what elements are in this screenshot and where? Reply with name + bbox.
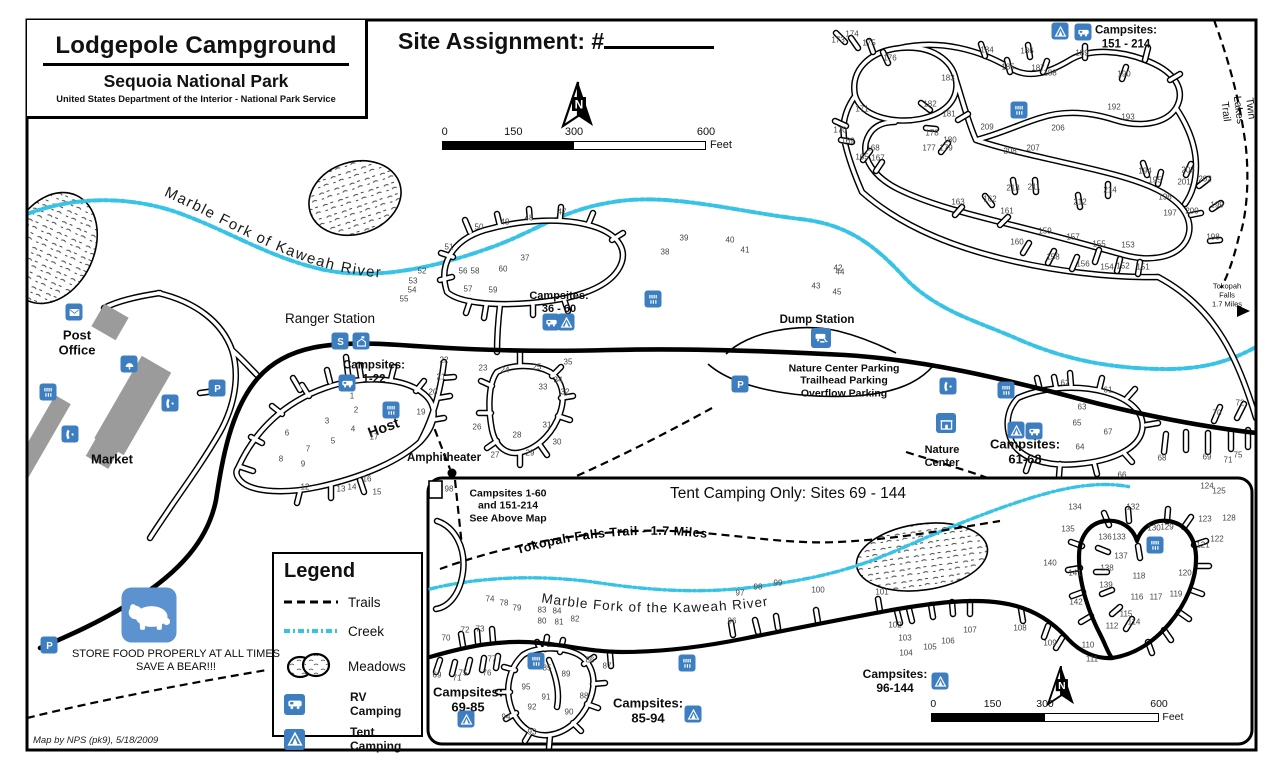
legend-item-label: Trails: [348, 595, 381, 610]
site-assignment-label: Site Assignment: #: [398, 28, 604, 54]
title-block: Lodgepole Campground Sequoia National Pa…: [27, 20, 368, 119]
creek-marble-fork: [27, 199, 1256, 369]
legend: Legend TrailsCreekMeadowsRV CampingTent …: [272, 552, 423, 737]
legend-sample-trail: [284, 598, 340, 606]
trail: [572, 408, 712, 478]
meadow-area: [299, 149, 411, 247]
map-credit: Map by NPS (pk9), 5/18/2009: [33, 735, 158, 746]
scale-tick: 600: [697, 126, 715, 138]
legend-sample-creek: [284, 627, 340, 635]
scale-bar-graphic: [442, 141, 706, 150]
legend-item-label: Creek: [348, 624, 384, 639]
legend-item: Tent Camping: [284, 725, 411, 753]
map-subtitle: Sequoia National Park: [27, 71, 365, 92]
scale-unit: Feet: [1162, 711, 1183, 723]
legend-sample-rv: [284, 694, 340, 715]
scale-tick: 600: [1150, 698, 1168, 710]
agency-line: United States Department of the Interior…: [27, 94, 365, 104]
legend-item-label: RV Camping: [350, 690, 411, 718]
scale-bar-graphic: [931, 713, 1159, 722]
lodgepole-campground-map: Marble Fork of Kaweah River Tokopah Fall…: [0, 0, 1280, 777]
scale-bar-inset: 0 150 300 600 Feet: [931, 698, 1159, 728]
legend-item-label: Tent Camping: [350, 725, 411, 753]
scale-bar: 0 150 300 600 Feet: [442, 126, 706, 156]
scale-unit: Feet: [710, 139, 732, 151]
scale-tick: 300: [1036, 698, 1054, 710]
legend-title: Legend: [284, 560, 411, 583]
tokopah-trail-exit: [1221, 236, 1239, 288]
scale-tick: 300: [565, 126, 583, 138]
map-title: Lodgepole Campground: [27, 32, 365, 60]
trail-arrow: [1237, 305, 1250, 317]
legend-item-label: Meadows: [348, 659, 406, 674]
svg-text:N: N: [575, 98, 584, 112]
tent-camping-icon: [284, 729, 305, 750]
trail: [27, 670, 267, 718]
legend-item: Trails: [284, 591, 411, 613]
site-assignment: Site Assignment: #: [398, 26, 714, 55]
scale-tick: 150: [984, 698, 1002, 710]
site-98-box: [429, 481, 442, 498]
buildings: [13, 304, 172, 478]
title-rule: [43, 63, 349, 66]
legend-item: Meadows: [284, 649, 411, 683]
svg-text:N: N: [1058, 681, 1065, 692]
scale-tick: 0: [442, 126, 448, 138]
site-assignment-blank[interactable]: [604, 26, 714, 49]
legend-sample-meadow: [284, 649, 340, 683]
legend-item: Creek: [284, 620, 411, 642]
scale-tick: 150: [504, 126, 522, 138]
scale-tick: 0: [930, 698, 936, 710]
rv-camping-icon: [284, 694, 305, 715]
parking-lot-edge: [708, 364, 933, 396]
trail: [906, 452, 988, 478]
legend-item: RV Camping: [284, 690, 411, 718]
twin-lakes-trail: [1214, 20, 1247, 232]
legend-sample-tent: [284, 729, 340, 750]
